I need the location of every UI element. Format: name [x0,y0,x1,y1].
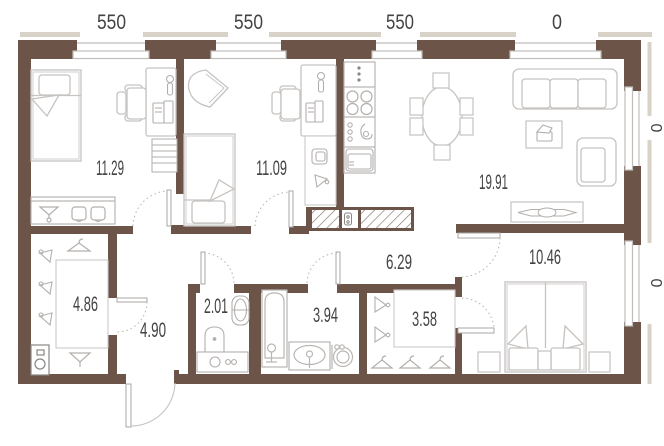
svg-text:0: 0 [647,124,664,133]
svg-text:4.90: 4.90 [140,318,166,342]
svg-text:0: 0 [552,11,562,34]
svg-text:3.94: 3.94 [313,303,338,327]
svg-text:19.91: 19.91 [479,170,508,194]
svg-text:0: 0 [647,279,664,288]
svg-text:10.46: 10.46 [529,245,561,269]
svg-text:550: 550 [386,11,414,34]
svg-text:11.29: 11.29 [96,156,124,180]
svg-text:11.09: 11.09 [256,156,287,180]
svg-text:6.29: 6.29 [386,250,412,274]
svg-text:2.01: 2.01 [204,294,228,318]
svg-text:4.86: 4.86 [73,292,98,316]
svg-text:550: 550 [234,11,263,34]
svg-text:3.58: 3.58 [412,307,437,331]
svg-text:550: 550 [97,11,126,34]
